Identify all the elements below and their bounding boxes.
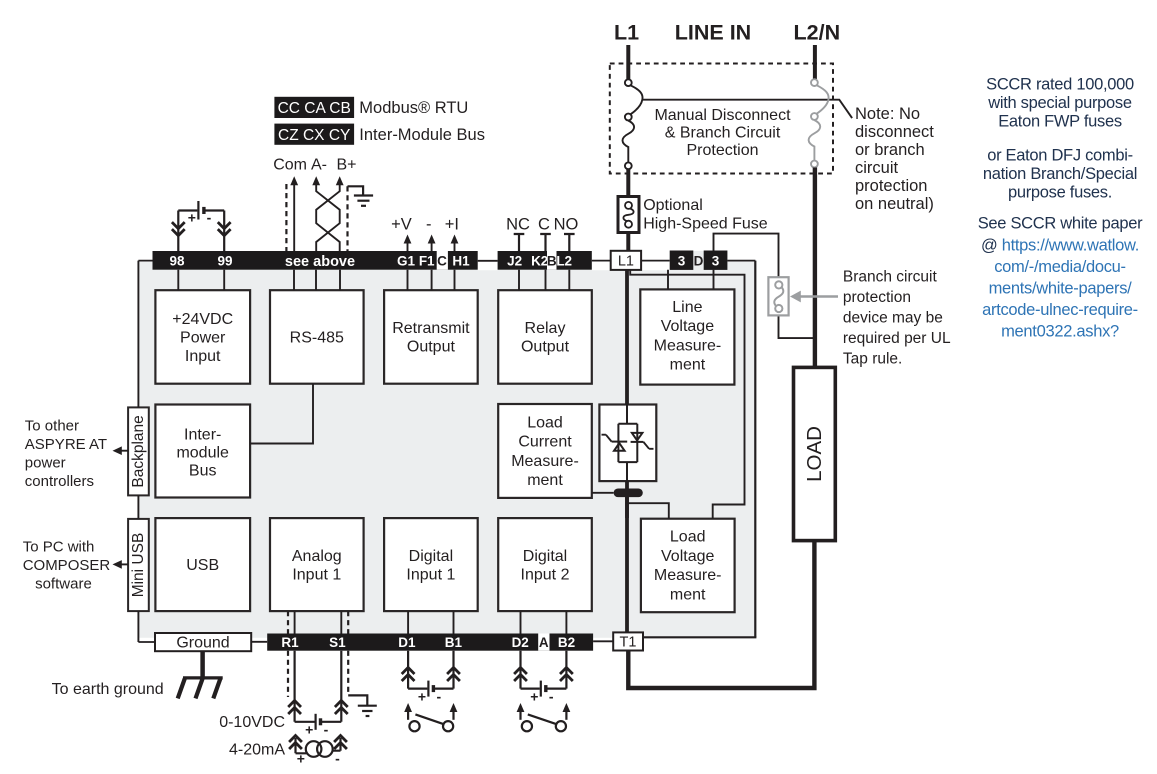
svg-text:Com: Com (273, 157, 307, 174)
svg-text:Modbus® RTU: Modbus® RTU (359, 99, 468, 117)
svg-text:Voltage: Voltage (661, 548, 714, 565)
svg-text:Output: Output (521, 339, 570, 356)
svg-text:+: + (297, 751, 305, 767)
svg-text:-: - (549, 689, 554, 705)
svg-text:S1: S1 (329, 635, 346, 650)
svg-text:-: - (324, 722, 329, 738)
svg-text:protection: protection (843, 289, 911, 306)
svg-text:Load: Load (527, 415, 563, 432)
svg-text:+24VDC: +24VDC (172, 311, 233, 328)
svg-text:Voltage: Voltage (661, 318, 714, 335)
svg-text:C: C (437, 254, 447, 269)
svg-text:NO: NO (554, 216, 579, 234)
svg-text:-: - (436, 689, 441, 705)
svg-text:98: 98 (169, 254, 185, 269)
svg-text:A: A (539, 635, 549, 650)
svg-text:see above: see above (285, 254, 355, 270)
svg-text:purpose fuses.: purpose fuses. (1008, 184, 1112, 202)
svg-text:Note: No: Note: No (855, 105, 920, 123)
svg-text:with special purpose: with special purpose (987, 94, 1132, 112)
svg-text:-: - (426, 216, 432, 234)
svg-text:Branch circuit: Branch circuit (843, 269, 938, 286)
svg-text:L1: L1 (614, 21, 639, 45)
svg-text:3: 3 (712, 254, 720, 269)
svg-text:LOAD: LOAD (803, 426, 826, 482)
svg-text:power: power (25, 455, 66, 472)
svg-text:ment: ment (670, 357, 706, 374)
svg-text:L2/N: L2/N (794, 21, 841, 45)
svg-text:T1: T1 (620, 635, 637, 651)
svg-text:Mini USB: Mini USB (130, 533, 147, 598)
svg-text:High-Speed Fuse: High-Speed Fuse (643, 216, 768, 233)
svg-text:D1: D1 (398, 635, 416, 650)
svg-text:device may be: device may be (843, 310, 943, 327)
svg-text:artcode-ulnec-require-: artcode-ulnec-require- (982, 301, 1138, 319)
svg-text:ASPYRE AT: ASPYRE AT (25, 436, 107, 453)
svg-text:com/-/media/docu-: com/-/media/docu- (994, 258, 1126, 276)
svg-text:-: - (335, 751, 340, 767)
svg-text:Measure-: Measure- (654, 337, 722, 354)
svg-text:D: D (694, 254, 704, 269)
svg-text:To other: To other (25, 418, 79, 435)
svg-text:Manual Disconnect: Manual Disconnect (654, 107, 791, 124)
svg-text:+: + (530, 689, 538, 705)
svg-text:disconnect: disconnect (855, 123, 934, 141)
svg-text:Current: Current (518, 434, 572, 451)
svg-text:+V: +V (391, 216, 412, 234)
svg-text:RS-485: RS-485 (290, 330, 344, 347)
svg-text:Digital: Digital (409, 548, 453, 565)
svg-text:3: 3 (678, 254, 686, 269)
svg-text:on neutral): on neutral) (855, 195, 934, 213)
svg-text:F1: F1 (419, 254, 435, 269)
svg-text:0-10VDC: 0-10VDC (219, 714, 285, 731)
svg-text:K2: K2 (531, 254, 548, 269)
svg-text:G1: G1 (397, 254, 416, 269)
svg-text:+: + (305, 722, 313, 738)
svg-text:To PC with: To PC with (23, 539, 95, 556)
svg-text:Optional: Optional (643, 197, 703, 214)
svg-text:+: + (418, 689, 426, 705)
svg-text:or Eaton DFJ combi-: or Eaton DFJ combi- (987, 147, 1133, 165)
svg-text:J2: J2 (507, 254, 522, 269)
svg-text:nation Branch/Special: nation Branch/Special (983, 165, 1137, 183)
svg-text:circuit: circuit (855, 159, 899, 177)
svg-text:LINE IN: LINE IN (675, 21, 751, 45)
svg-text:COMPOSER: COMPOSER (23, 557, 111, 574)
svg-text:Bus: Bus (189, 463, 217, 480)
svg-text:protection: protection (855, 177, 927, 195)
svg-text:controllers: controllers (25, 473, 94, 490)
svg-text:SCCR rated 100,000: SCCR rated 100,000 (986, 76, 1134, 94)
svg-text:L1: L1 (618, 254, 634, 270)
svg-text:Input 1: Input 1 (406, 567, 455, 584)
svg-text:C: C (538, 216, 550, 234)
svg-text:Output: Output (407, 339, 456, 356)
svg-text:B+: B+ (337, 157, 357, 174)
svg-text:& Branch Circuit: & Branch Circuit (665, 125, 781, 142)
svg-text:Input 1: Input 1 (292, 567, 341, 584)
svg-text:4-20mA: 4-20mA (229, 742, 285, 759)
svg-text:required per UL: required per UL (843, 330, 951, 347)
svg-text:Eaton FWP fuses: Eaton FWP fuses (998, 113, 1122, 131)
svg-text:Input 2: Input 2 (521, 567, 570, 584)
svg-text:+I: +I (445, 216, 459, 234)
svg-text:Power: Power (180, 330, 226, 347)
svg-text:To earth ground: To earth ground (52, 681, 164, 698)
svg-text:Line: Line (672, 299, 702, 316)
svg-text:Load: Load (670, 529, 706, 546)
svg-text:99: 99 (217, 254, 232, 269)
svg-text:ment: ment (670, 586, 706, 603)
svg-text:+: + (188, 210, 196, 226)
svg-text:B1: B1 (445, 635, 463, 650)
svg-text:Tap rule.: Tap rule. (843, 351, 902, 368)
svg-text:@ https://www.watlow.: @ https://www.watlow. (981, 237, 1139, 255)
svg-text:software: software (35, 576, 92, 593)
svg-text:A-: A- (311, 157, 327, 174)
svg-text:B2: B2 (558, 635, 575, 650)
svg-text:Retransmit: Retransmit (392, 320, 470, 337)
svg-text:Inter-: Inter- (184, 427, 221, 444)
svg-text:D2: D2 (512, 635, 529, 650)
svg-text:R1: R1 (281, 635, 299, 650)
svg-text:ment0322.ashx?: ment0322.ashx? (1001, 323, 1119, 341)
svg-text:Relay: Relay (525, 320, 566, 337)
svg-text:Inter-Module Bus: Inter-Module Bus (359, 126, 485, 144)
svg-text:module: module (176, 445, 229, 462)
svg-text:H1: H1 (452, 254, 470, 269)
svg-text:Measure-: Measure- (511, 453, 579, 470)
svg-text:Measure-: Measure- (654, 567, 722, 584)
svg-text:-: - (207, 210, 212, 226)
svg-text:Input: Input (185, 348, 221, 365)
svg-text:CZ CX CY: CZ CX CY (278, 127, 350, 144)
svg-text:Analog: Analog (292, 548, 342, 565)
svg-text:See SCCR white paper: See SCCR white paper (978, 215, 1143, 233)
svg-text:or branch: or branch (855, 141, 925, 159)
svg-text:CC CA CB: CC CA CB (278, 100, 351, 117)
svg-text:Protection: Protection (686, 142, 758, 159)
svg-text:ments/white-papers/: ments/white-papers/ (989, 280, 1133, 298)
svg-text:Digital: Digital (523, 548, 567, 565)
svg-text:L2: L2 (556, 254, 572, 269)
svg-text:NC: NC (506, 216, 530, 234)
svg-text:USB: USB (186, 557, 219, 574)
svg-text:Backplane: Backplane (130, 415, 147, 487)
svg-text:B: B (547, 254, 557, 269)
svg-text:ment: ment (527, 472, 563, 489)
svg-text:Ground: Ground (176, 635, 229, 652)
